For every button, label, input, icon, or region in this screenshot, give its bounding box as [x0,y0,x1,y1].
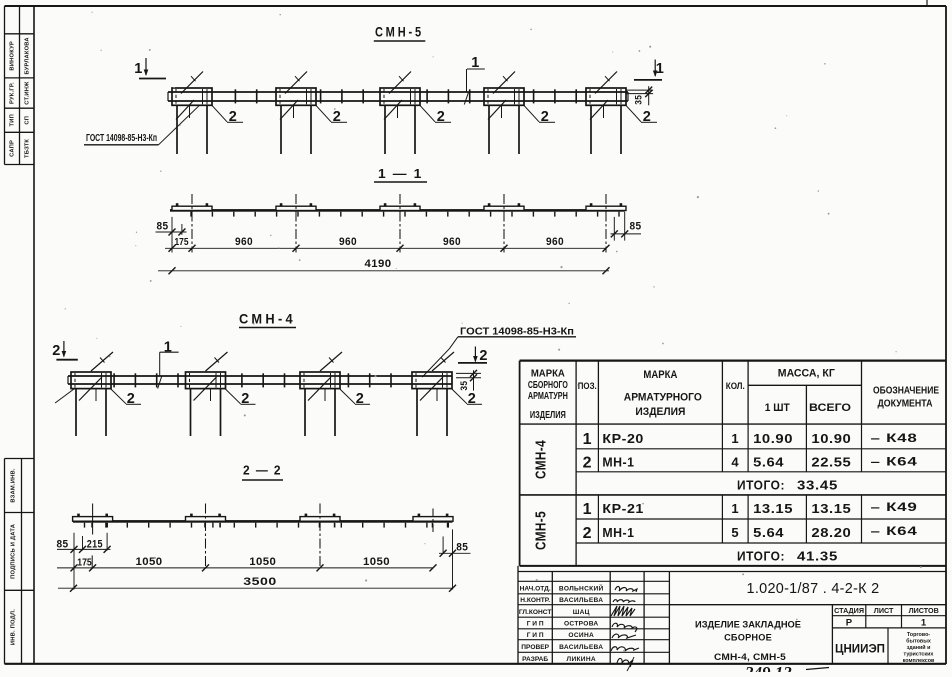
svg-text:СМН-5: СМН-5 [533,511,550,550]
svg-text:1: 1 [656,61,664,77]
svg-text:1050: 1050 [249,556,276,568]
svg-text:2: 2 [583,455,592,472]
svg-text:– К49: – К49 [871,502,918,514]
svg-text:33.45: 33.45 [797,478,838,493]
svg-text:ИТОГО:: ИТОГО: [737,478,785,493]
svg-text:КОЛ.: КОЛ. [726,381,745,391]
svg-text:СТ.ИНЖ: СТ.ИНЖ [25,81,31,105]
svg-text:ГОСТ 14098-85-Н3-Кп: ГОСТ 14098-85-Н3-Кп [460,327,574,338]
svg-text:2: 2 [437,109,445,125]
svg-text:КР-21: КР-21 [602,501,644,516]
svg-text:ИЗДЕЛИЯ: ИЗДЕЛИЯ [530,410,566,421]
svg-text:СМН-4: СМН-4 [239,312,296,327]
svg-text:– К64: – К64 [871,457,918,469]
svg-text:СБОРНОЕ: СБОРНОЕ [724,633,772,643]
svg-text:– К48: – К48 [871,433,918,445]
svg-text:ПРОВЕР: ПРОВЕР [521,644,549,651]
svg-text:СП: СП [25,116,31,125]
svg-text:НАЧ.ОТД.: НАЧ.ОТД. [520,586,551,593]
svg-text:СТАДИЯ: СТАДИЯ [834,606,864,615]
svg-text:Г И П: Г И П [527,632,544,639]
svg-text:ТИП: ТИП [10,114,16,126]
svg-text:1: 1 [164,340,172,356]
svg-text:ПОДПИСЬ И ДАТА: ПОДПИСЬ И ДАТА [11,523,17,579]
svg-text:85: 85 [456,542,468,554]
svg-text:комплексов: комплексов [903,658,935,664]
svg-text:1050: 1050 [363,556,390,568]
svg-text:ТБЗТК: ТБЗТК [25,139,31,158]
svg-text:ПОЗ.: ПОЗ. [578,381,597,391]
svg-text:3500: 3500 [243,576,277,588]
svg-text:СМН-4, СМН-5: СМН-4, СМН-5 [714,652,786,662]
svg-text:МАРКА: МАРКА [531,368,565,379]
svg-text:1 ШТ: 1 ШТ [765,402,790,414]
svg-text:1: 1 [921,618,927,629]
svg-text:МАРКА: МАРКА [643,369,677,381]
svg-text:4: 4 [731,455,739,470]
svg-text:СМН-4: СМН-4 [533,440,550,479]
svg-text:5: 5 [731,525,739,540]
svg-text:ЛИСТОВ: ЛИСТОВ [909,606,939,615]
svg-text:ДОКУМЕНТА: ДОКУМЕНТА [878,399,933,410]
svg-text:960: 960 [546,236,564,248]
svg-text:1: 1 [731,501,739,516]
svg-text:1050: 1050 [136,556,163,568]
svg-text:бытовых: бытовых [906,638,931,645]
svg-text:28.20: 28.20 [811,525,851,540]
svg-text:БУРЛАКОВА: БУРЛАКОВА [25,37,31,75]
svg-text:АРМАТУРН: АРМАТУРН [528,391,568,402]
svg-text:ИЗДЕЛИЕ ЗАКЛАДНОЕ: ИЗДЕЛИЕ ЗАКЛАДНОЕ [695,619,801,629]
svg-text:2: 2 [229,109,237,125]
svg-text:85: 85 [630,221,642,233]
svg-text:Н.КОНТР.: Н.КОНТР. [520,597,550,604]
svg-text:2: 2 [52,343,60,359]
svg-text:2: 2 [356,391,364,407]
svg-text:ЛИСТ: ЛИСТ [874,606,894,615]
svg-text:13.15: 13.15 [811,501,851,516]
svg-text:2: 2 [583,525,592,542]
svg-text:2: 2 [127,391,135,407]
svg-text:МН-1: МН-1 [602,455,634,470]
svg-text:ИЗДЕЛИЯ: ИЗДЕЛИЯ [635,406,685,418]
svg-text:МАССА, КГ: МАССА, КГ [778,368,836,380]
svg-text:2 — 2: 2 — 2 [243,464,282,478]
svg-text:ШАЦ: ШАЦ [573,609,590,616]
svg-text:ИТОГО:: ИТОГО: [737,549,785,564]
svg-text:2: 2 [541,109,549,125]
svg-text:ВСЕГО: ВСЕГО [809,402,851,414]
svg-text:ОСИНА: ОСИНА [568,632,594,639]
svg-text:5.64: 5.64 [753,525,784,540]
svg-text:ОСТРОВА: ОСТРОВА [564,621,599,628]
svg-text:ВАСИЛЬЕВА: ВАСИЛЬЕВА [559,597,603,604]
svg-text:1.020-1/87 . 4-2-К 2: 1.020-1/87 . 4-2-К 2 [747,580,880,597]
svg-text:2: 2 [241,391,249,407]
svg-text:АРМАТУРНОГО: АРМАТУРНОГО [624,392,702,404]
svg-text:ЦНИИЭП: ЦНИИЭП [835,642,885,656]
svg-text:СБОРНОГО: СБОРНОГО [528,380,568,391]
svg-text:– К64: – К64 [871,526,918,538]
svg-text:10.90: 10.90 [811,431,851,446]
svg-text:Торгово-: Торгово- [907,632,931,638]
svg-text:2: 2 [643,109,651,125]
svg-text:ОБОЗНАЧЕНИЕ: ОБОЗНАЧЕНИЕ [873,385,939,396]
svg-text:22.55: 22.55 [811,455,851,470]
svg-text:ЛИКИНА: ЛИКИНА [567,656,596,663]
svg-text:ВЗАМ.ИНВ.: ВЗАМ.ИНВ. [11,468,17,503]
svg-text:2: 2 [468,391,476,407]
svg-text:35: 35 [634,95,645,105]
svg-text:85: 85 [157,221,169,233]
svg-text:ИНВ. ПОДЛ.: ИНВ. ПОДЛ. [11,609,17,645]
svg-text:1: 1 [731,431,739,446]
svg-text:960: 960 [235,236,253,248]
svg-text:РАЗРАБ: РАЗРАБ [522,656,548,663]
svg-text:960: 960 [443,236,461,248]
svg-text:ГОСТ 14098-85-Н3-Кп: ГОСТ 14098-85-Н3-Кп [86,132,157,144]
svg-text:5.64: 5.64 [753,455,784,470]
svg-text:МН-1: МН-1 [602,525,634,540]
svg-text:960: 960 [339,236,357,248]
svg-text:Г И П: Г И П [527,621,544,628]
svg-text:85: 85 [57,538,69,550]
svg-text:2: 2 [333,109,341,125]
svg-text:10.90: 10.90 [753,431,793,446]
svg-text:1: 1 [134,61,142,77]
svg-text:зданий и: зданий и [907,644,931,651]
svg-text:САПР: САПР [10,140,16,157]
svg-text:1: 1 [583,501,592,518]
svg-text:4190: 4190 [365,258,392,270]
svg-text:ГЛ.КОНСТ: ГЛ.КОНСТ [519,609,552,616]
svg-text:1 — 1: 1 — 1 [378,167,423,181]
svg-text:41.35: 41.35 [797,549,838,564]
svg-text:13.15: 13.15 [753,501,793,516]
svg-text:СМН-5: СМН-5 [375,25,424,40]
svg-text:249.12: 249.12 [744,663,792,672]
svg-text:Р: Р [846,618,853,629]
svg-text:ВИНОКУР: ВИНОКУР [10,41,16,71]
svg-text:ВАСИЛЬЕВА: ВАСИЛЬЕВА [559,644,603,651]
svg-text:туристских: туристских [904,651,934,657]
svg-text:РУК.ГР.: РУК.ГР. [10,82,16,104]
svg-text:35: 35 [459,380,470,390]
svg-text:175: 175 [77,557,92,568]
svg-text:ВОЛЬНСКИЙ: ВОЛЬНСКИЙ [559,584,604,593]
svg-text:1: 1 [583,431,592,448]
svg-text:КР-20: КР-20 [602,431,644,446]
svg-text:2: 2 [479,348,487,364]
svg-text:215: 215 [87,538,103,550]
svg-text:175: 175 [175,237,189,248]
